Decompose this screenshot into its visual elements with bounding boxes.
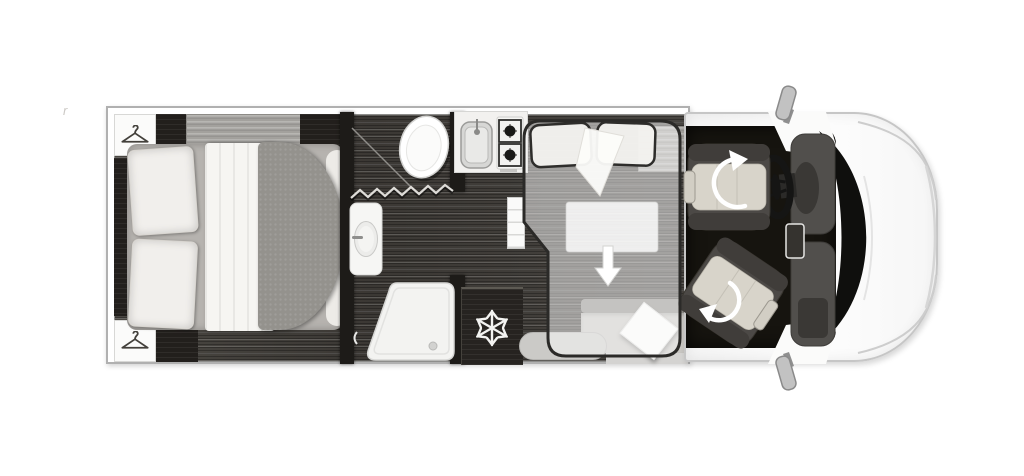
shower-tray [355,283,455,360]
concertina-door-shadow [351,187,453,200]
kitchen-sink [461,119,492,168]
shower-drain [429,342,437,350]
driver-seat [684,144,770,230]
basin-faucet [352,236,363,239]
watermark-artifact: r [63,103,67,118]
dashboard [786,134,835,346]
washbasin [350,203,382,275]
toilet [393,112,456,186]
kitchen-hob [497,117,523,172]
concertina-door [351,185,453,198]
dropbed-panel [566,202,658,252]
passenger-seat [675,234,794,353]
floorplan-canvas: r [0,0,1024,476]
detail-layer [0,0,1024,476]
radio-console [786,224,804,258]
drop-down-bed-overlay [524,121,680,356]
hob-label-smudge [500,169,517,172]
hood-trim-lines [858,122,936,353]
snowflake-icon [475,311,509,345]
door-handle [355,332,358,344]
